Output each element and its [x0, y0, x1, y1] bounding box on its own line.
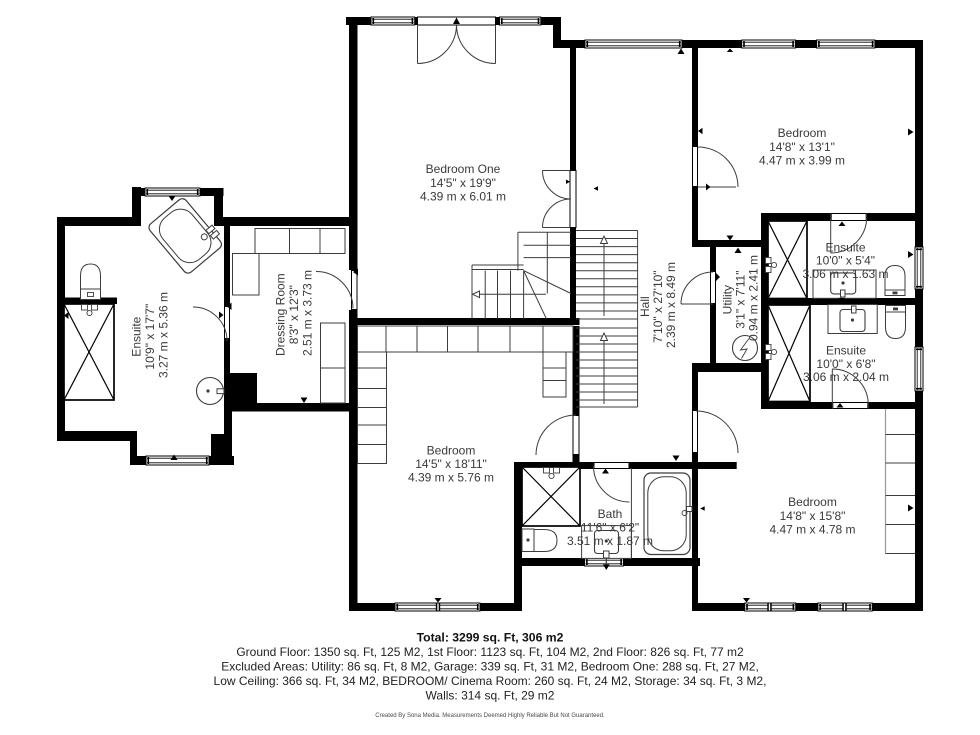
svg-text:Walls: 314 sq. Ft, 29 m2: Walls: 314 sq. Ft, 29 m2 [426, 689, 555, 703]
svg-text:Low Ceiling: 366 sq. Ft, 34 M2: Low Ceiling: 366 sq. Ft, 34 M2, BEDROOM/… [214, 674, 767, 688]
svg-text:Bedroom One14'5" x 19'9"4.39 m: Bedroom One14'5" x 19'9"4.39 m x 6.01 m [420, 162, 506, 204]
svg-text:Ground Floor: 1350 sq. Ft, 125: Ground Floor: 1350 sq. Ft, 125 M2, 1st F… [236, 645, 744, 659]
svg-text:Excluded Areas: Utility: 86 sq: Excluded Areas: Utility: 86 sq. Ft, 8 M2… [221, 660, 759, 674]
svg-text:Dressing Room 8'3" x 12'3" 2.5: Dressing Room 8'3" x 12'3" 2.51 m x 3.73… [274, 270, 315, 356]
svg-text:Created By Sona Media. Measure: Created By Sona Media. Measurements Deem… [375, 713, 605, 719]
svg-text:Total: 3299 sq. Ft, 306 m2: Total: 3299 sq. Ft, 306 m2 [417, 631, 564, 645]
